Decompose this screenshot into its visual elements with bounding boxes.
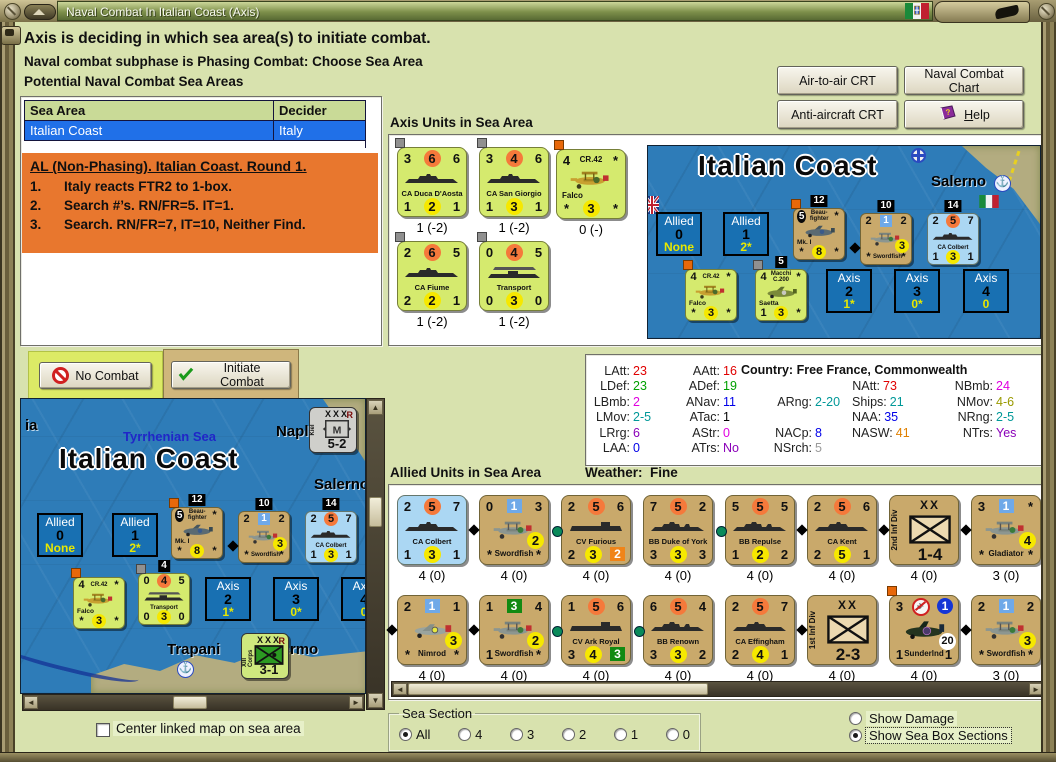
unit-stats-panel: LAtt:23AAtt:16LDef:23ADef:19NAtt:73NBmb:…	[585, 354, 1048, 466]
stat-value: 5	[815, 441, 852, 455]
counter-value: 2	[610, 547, 625, 561]
sea-area-map[interactable]: Italian Coast Salerno ⚓ Allied0None Alli…	[647, 145, 1041, 339]
counter-swordfish[interactable]: 2123*Swordfish*	[971, 595, 1041, 665]
counter-value: *	[562, 201, 571, 216]
column-decider[interactable]: Decider	[274, 101, 377, 121]
counter-value: 3	[506, 292, 523, 309]
counter-value: 2	[977, 599, 986, 614]
counter-bb-duke-of-york[interactable]: 752BB Duke of York333	[643, 495, 713, 565]
stat-nacp: NACp:8	[760, 426, 852, 440]
map-counter-xiii-corps[interactable]: XXXR3-1XIII Corps	[241, 633, 289, 679]
link-dot-icon	[552, 526, 563, 537]
counter-value: *	[77, 615, 86, 627]
counter-value: 7	[649, 499, 658, 514]
frame-right	[1041, 22, 1056, 752]
stat-lbmb: LBmb:2	[592, 395, 670, 409]
counter-value: 2	[567, 547, 576, 562]
counter-value: 1	[895, 647, 904, 662]
cell-sea-area[interactable]: Italian Coast	[25, 121, 274, 141]
stat-value: 2-5	[996, 410, 1033, 424]
log-number: 2.	[30, 196, 64, 215]
sea-box-number: 3	[292, 593, 300, 606]
counter-cv-furious[interactable]: 256CV Furious232	[561, 495, 631, 565]
svg-text:M: M	[333, 424, 342, 436]
radio-icon[interactable]	[399, 728, 412, 741]
map-vertical-scrollbar[interactable]: ▲ ▼	[366, 398, 385, 710]
link-diamond-icon	[796, 624, 807, 635]
counter-value: 2	[698, 647, 707, 662]
italy-flag-icon	[979, 195, 999, 208]
counter-value: 5	[780, 499, 789, 514]
air-to-air-crt-button[interactable]: Air-to-air CRT	[777, 66, 898, 95]
counter-value: 1	[966, 251, 975, 263]
counter-value: 2	[403, 599, 412, 614]
counter-sunderlnd[interactable]: 3✈1201Sunderlnd1	[889, 595, 959, 665]
counter-value: 5	[670, 598, 687, 615]
counter-value: 5	[834, 498, 851, 515]
cruiser-art-icon	[398, 514, 466, 538]
no-combat-button[interactable]: No Combat	[39, 362, 152, 389]
counter-value: *	[977, 547, 986, 562]
stat-value: 2	[633, 395, 670, 409]
counter-value: 6	[424, 244, 441, 261]
counter-caption: 3 (0)	[993, 568, 1020, 583]
units-horizontal-scrollbar[interactable]: ◄ ►	[391, 681, 1045, 697]
table-scroll-strip[interactable]	[365, 100, 379, 148]
sea-box-axis-3[interactable]: Axis30*	[273, 577, 319, 621]
sea-box-value: 0*	[290, 606, 301, 619]
counter-caption: 4 (0)	[829, 568, 856, 583]
counter-value: 2	[403, 245, 412, 260]
sea-box-allied-0[interactable]: Allied0None	[656, 212, 702, 256]
book-icon: ?	[938, 105, 958, 124]
biplane_tan-art-icon	[557, 168, 625, 192]
counter-unit[interactable]: XX2-31st Inf Div	[807, 595, 877, 665]
counter-value: 5	[175, 509, 184, 522]
counter-ca-colbert[interactable]: 14257CA Colbert131	[927, 213, 979, 265]
cruiser-art-icon	[928, 227, 978, 245]
sea-box-number: 0	[675, 228, 683, 241]
sea-box-allied-1[interactable]: Allied12*	[723, 212, 769, 256]
table-row[interactable]: Italian Coast Italy	[25, 121, 377, 141]
counter-value: 2	[567, 499, 576, 514]
stat-label: ATrs:	[670, 441, 720, 455]
roundel-icon	[911, 148, 926, 163]
counter-value: 1	[880, 215, 892, 227]
counter-ca-kent[interactable]: 256CA Kent251	[807, 495, 877, 565]
sea-box-allied-0[interactable]: Allied0None	[37, 513, 83, 557]
counter-value: CR.42	[580, 156, 603, 164]
counter-value: *	[1026, 499, 1035, 514]
counter-value: 2	[403, 499, 412, 514]
map-counter-kiel[interactable]: XXXRM5-2Kiel	[309, 407, 357, 453]
port-salerno-label: Salerno	[931, 173, 986, 190]
region-label: ia	[25, 417, 38, 434]
counter-unit[interactable]: XX1-42nd Inf Div	[889, 495, 959, 565]
counter-value: 5	[670, 498, 687, 515]
stat-label: ADef:	[670, 379, 720, 393]
counter-value: 1	[452, 293, 461, 308]
counter-value: 2	[731, 599, 740, 614]
counter-value: 3	[610, 647, 625, 661]
sea-box-axis-4[interactable]: Axis40	[341, 577, 366, 621]
counter-value: Swordfish	[495, 650, 534, 658]
sea-area-table: Sea Area Decider Italian Coast Italy	[24, 100, 377, 141]
biplane_gray-art-icon: 3	[239, 525, 289, 549]
log-title: AL (Non-Phasing). Italian Coast. Round 1…	[30, 158, 370, 174]
counter-value: 1	[999, 599, 1014, 613]
biplane_gray-art-icon: 4	[972, 514, 1040, 546]
counter-value: 2	[813, 499, 822, 514]
stat-latt: LAtt:23	[592, 364, 670, 378]
linked-map[interactable]: ia Tyrrhenian Sea Naples XXXRM5-2Kiel It…	[20, 398, 366, 694]
radio-option-2[interactable]: 2	[562, 726, 586, 744]
counter-value: 1	[485, 599, 494, 614]
counter-value: Macchi C.200	[768, 271, 794, 283]
stat-laa: LAA:0	[592, 441, 670, 455]
counter-value: 5	[752, 498, 769, 515]
counter-value: *	[864, 251, 873, 263]
counter-ca-fiume[interactable]: 265CA Fiume221	[397, 241, 467, 311]
counter-value: 3	[424, 546, 441, 563]
center-map-label: Center linked map on sea area	[113, 721, 304, 736]
counter-value: 7	[452, 499, 461, 514]
fighter_gray-art-icon	[794, 222, 844, 240]
no-combat-label: No Combat	[75, 369, 138, 383]
counter-ca-colbert[interactable]: 257CA Colbert131	[397, 495, 467, 565]
counter-name: CA Colbert	[398, 538, 466, 546]
link-diamond-icon	[960, 624, 971, 635]
counter-swordfish[interactable]: 102123*Swordfish*	[238, 511, 290, 563]
radio-icon[interactable]	[562, 728, 575, 741]
sea-box-value: 0	[983, 298, 990, 311]
counter-nimrod[interactable]: 2113*Nimrod*	[397, 595, 467, 665]
counter-bb-repulse[interactable]: 555BB Repulse122	[725, 495, 795, 565]
stat-value: 19	[723, 379, 760, 393]
allied-units-panel: 257CA Colbert1314 (0) 0132*Swordfish*4 (…	[388, 484, 1048, 700]
no-fly-marker: ✈	[912, 597, 930, 616]
stat-anav: ANav:11	[670, 395, 760, 409]
stat-ldef: LDef:23	[592, 379, 670, 393]
counter-value: 5	[797, 210, 806, 223]
log-number: 3.	[30, 215, 64, 234]
counter-value: *	[832, 246, 841, 258]
sea-box-allied-1[interactable]: Allied12*	[112, 513, 158, 557]
counter-value: 5	[588, 598, 605, 615]
counter-value: 1	[452, 547, 461, 562]
radio-icon[interactable]	[614, 728, 627, 741]
cruiser-art-icon	[306, 525, 356, 543]
stat-value: 73	[883, 379, 920, 393]
tyrrhenian-sea-label: Tyrrhenian Sea	[123, 429, 216, 444]
italy-flag-icon	[905, 3, 929, 19]
counter-value: 2	[780, 547, 789, 562]
no-fly-icon: ✈	[912, 598, 930, 616]
stat-value: No	[723, 441, 760, 455]
counter-transport[interactable]: 045Transport030	[479, 241, 549, 311]
counter-value: 3	[670, 646, 687, 663]
counter-value: *	[977, 647, 986, 662]
title-bar[interactable]: Naval Combat In Italian Coast (Axis)	[0, 0, 1056, 22]
link-diamond-icon	[849, 242, 860, 253]
counter-value: Swordfish	[251, 552, 277, 558]
counter-value: 1	[452, 599, 461, 614]
frame-knob	[1, 26, 21, 45]
stat-lrrg: LRrg:6	[592, 426, 670, 440]
show-damage-option[interactable]: Show Damage	[849, 710, 957, 728]
dark_plane-art-icon: 20	[890, 614, 958, 646]
cruiser-art-icon	[808, 514, 876, 538]
radio-option-3[interactable]: 3	[510, 726, 534, 744]
initiate-combat-button[interactable]: Initiate Combat	[171, 361, 291, 389]
counter-value: 1	[780, 647, 789, 662]
stat-arng: ARng:2-20	[760, 395, 852, 409]
counter-subname: Falco	[557, 192, 625, 200]
sea-box-axis-2[interactable]: Axis21*	[205, 577, 251, 621]
scroll-thumb[interactable]	[408, 683, 708, 695]
counter-caption: 1 (-2)	[416, 220, 447, 235]
counter-value: 2	[698, 499, 707, 514]
counter-value: 1	[485, 199, 494, 214]
collapse-button[interactable]	[24, 4, 56, 20]
map-title: Italian Coast	[59, 443, 238, 475]
counter-value: 5	[731, 499, 740, 514]
counter-value: 4	[77, 579, 86, 591]
stat-nasw: NASW:41	[852, 426, 920, 440]
sea-box-value: 2*	[740, 241, 751, 254]
counter-value: *	[112, 579, 121, 591]
counter-saetta[interactable]: 54Macchi C.200*Saetta13*	[755, 269, 807, 321]
stat-label: NAtt:	[852, 379, 880, 393]
scroll-thumb[interactable]	[369, 497, 382, 527]
battleship-art-icon	[726, 514, 794, 538]
counter-value: 3	[157, 610, 171, 624]
radio-option-1[interactable]: 1	[614, 726, 638, 744]
counter-value: 3	[485, 151, 494, 166]
city-trapani-label: Trapani	[167, 641, 220, 658]
stat-label: LAA:	[592, 441, 630, 455]
check-icon	[178, 367, 194, 384]
counter-value: 1	[258, 513, 270, 525]
stat-label: NASW:	[852, 426, 893, 440]
counter-falco[interactable]: 4CR.42*Falco*3*	[73, 577, 125, 629]
stat-ntrs: NTrs:Yes	[920, 426, 1033, 440]
biplane_gray-art-icon: 3	[861, 227, 911, 251]
corner-marker-orange	[887, 586, 897, 596]
link-diamond-icon	[227, 540, 238, 551]
counter-transport[interactable]: 4045Transport030	[138, 573, 190, 625]
counter-value: Gladiator	[988, 550, 1023, 558]
counter-value: *	[724, 307, 733, 319]
counter-value: 0	[485, 245, 494, 260]
counter-ca-duca-d-aosta[interactable]: 366CA Duca D'Aosta121	[397, 147, 467, 217]
triangle-icon	[33, 9, 45, 15]
counter-value: 5	[177, 575, 186, 587]
counter-name: CV Ark Royal	[562, 638, 630, 646]
division-rating: 1-4	[902, 547, 958, 562]
counter-cv-ark-royal[interactable]: 156CV Ark Royal343	[561, 595, 631, 665]
sea-box-axis-4[interactable]: Axis40	[963, 269, 1009, 313]
radio-icon[interactable]	[510, 728, 523, 741]
counter-value: 3	[895, 599, 904, 614]
counter-value: *	[797, 246, 806, 258]
stat-label: NBmb:	[920, 379, 993, 393]
counter-value: 7	[344, 513, 353, 525]
counter-swordfish[interactable]: 13421Swordfish*	[479, 595, 549, 665]
column-sea-area[interactable]: Sea Area	[25, 101, 274, 121]
log-line: 3.Search. RN/FR=7, IT=10, Neither Find.	[30, 215, 370, 234]
counter-value: 3	[698, 547, 707, 562]
axis-units-title: Axis Units in Sea Area	[390, 115, 533, 130]
center-map-checkbox[interactable]	[96, 723, 110, 737]
counter-falco[interactable]: 4CR.42*Falco*3*	[556, 149, 626, 219]
counter-mk-i[interactable]: 125Beau-fighter*Mk. I*8*	[793, 208, 845, 260]
counter-value: 8	[812, 245, 826, 259]
scroll-up-arrow[interactable]: ▲	[368, 400, 383, 415]
help-button[interactable]: ? Help	[904, 100, 1024, 129]
counter-value: 6	[862, 499, 871, 514]
counter-value: 3	[92, 614, 106, 628]
radio-option-4[interactable]: 4	[458, 726, 482, 744]
xgreen-icon	[254, 645, 284, 664]
counter-value: *	[485, 547, 494, 562]
counter-value: 1	[937, 598, 953, 614]
fighter_green-art-icon	[756, 283, 806, 301]
corner-marker-orange	[554, 140, 564, 150]
stat-label: LAtt:	[592, 364, 630, 378]
axis-units-panel: 366CA Duca D'Aosta1211 (-2) 346CA San Gi…	[388, 134, 1048, 346]
sea-area-panel: Sea Area Decider Italian Coast Italy AL …	[20, 96, 382, 346]
biplane_gray-art-icon: 2	[480, 614, 548, 646]
counter-caption: 0 (-)	[579, 222, 603, 237]
counter-mk-i[interactable]: 125Beau-fighter*Mk. I*8*	[171, 507, 223, 559]
counter-value: *	[242, 549, 251, 561]
stat-label: ARng:	[760, 395, 812, 409]
scroll-down-arrow[interactable]: ▼	[368, 693, 383, 708]
stat-label: LDef:	[592, 379, 630, 393]
counter-value: 6	[452, 151, 461, 166]
cruiser-art-icon	[726, 614, 794, 638]
counter-value: 3	[670, 546, 687, 563]
radio-icon[interactable]	[849, 729, 862, 742]
stack-count-badge: 12	[188, 494, 205, 506]
counter-swordfish[interactable]: 0132*Swordfish*	[479, 495, 549, 565]
radio-icon[interactable]	[666, 728, 679, 741]
log-text: Italy reacts FTR2 to 1-box.	[64, 177, 232, 196]
counter-value: 3	[774, 306, 788, 320]
counter-value: 3	[946, 250, 960, 264]
sea-box-value: 1*	[843, 298, 854, 311]
radio-option-all[interactable]: All	[399, 726, 430, 744]
no-symbol-icon	[52, 367, 69, 384]
transport-art-icon	[480, 260, 548, 284]
stack-count-badge: 12	[810, 195, 827, 207]
radio-icon[interactable]	[849, 712, 862, 725]
cell-decider[interactable]: Italy	[274, 121, 377, 141]
stat-value: 0	[723, 426, 760, 440]
naval-combat-chart-button[interactable]: Naval Combat Chart	[904, 66, 1024, 95]
scroll-left-arrow[interactable]: ◄	[393, 683, 407, 695]
counter-value: 4	[698, 599, 707, 614]
counter-value: 2	[309, 513, 318, 525]
counter-value: 1	[507, 499, 522, 513]
counter-ca-san-giorgio[interactable]: 346CA San Giorgio131	[479, 147, 549, 217]
frame-left	[0, 22, 15, 752]
counter-value: 2	[424, 292, 441, 309]
log-text: Search. RN/FR=7, IT=10, Neither Find.	[64, 215, 306, 234]
stat-atrs: ATrs:No	[670, 441, 760, 455]
radio-option-0[interactable]: 0	[666, 726, 690, 744]
city-salerno-label: Salerno	[314, 476, 366, 493]
link-dot-icon	[716, 526, 727, 537]
stat-naa: NAA:35	[852, 410, 920, 424]
counter-caption: 1 (-2)	[498, 314, 529, 329]
map-title: Italian Coast	[698, 150, 877, 182]
counter-value: 6	[649, 599, 658, 614]
counter-value: 3	[506, 198, 523, 215]
stat-natt: NAtt:73	[852, 379, 920, 393]
sea-box-number: 2	[845, 285, 853, 298]
potential-areas-line: Potential Naval Combat Sea Areas	[24, 74, 243, 89]
counter-gladiator[interactable]: 31*4*Gladiator*	[971, 495, 1041, 565]
stat-label: LMov:	[592, 410, 630, 424]
screw-icon	[1038, 3, 1055, 20]
counter-value: 1	[403, 547, 412, 562]
counter-value: *	[611, 153, 620, 168]
sea-box-value: 2*	[129, 542, 140, 555]
radio-icon[interactable]	[458, 728, 471, 741]
counter-value: 2	[899, 215, 908, 227]
sea-box-axis-2[interactable]: Axis21*	[826, 269, 872, 313]
scroll-right-arrow[interactable]: ►	[349, 696, 363, 709]
log-text: Search #’s. RN/FR=5. IT=1.	[64, 196, 234, 215]
counter-name: BB Duke of York	[644, 538, 712, 546]
capacity-number: 20	[939, 633, 956, 650]
counter-ca-colbert[interactable]: 14257CA Colbert131	[305, 511, 357, 563]
counter-value: 3	[507, 599, 522, 613]
counter-name: CA Fiume	[398, 284, 466, 292]
counter-swordfish[interactable]: 102123*Swordfish*	[860, 213, 912, 265]
counter-value: 1	[344, 549, 353, 561]
link-dot-icon	[552, 626, 563, 637]
map-horizontal-scrollbar[interactable]: ◄ ►	[22, 694, 365, 711]
anti-aircraft-crt-button[interactable]: Anti-aircraft CRT	[777, 100, 898, 129]
show-sea-box-sections-option[interactable]: Show Sea Box Sections	[849, 727, 1011, 745]
scroll-thumb[interactable]	[173, 696, 207, 709]
counter-ca-effingham[interactable]: 257CA Effingham241	[725, 595, 795, 665]
stat-label: AStr:	[670, 426, 720, 440]
menu-glyph-icon	[994, 5, 1020, 20]
counter-value: *	[403, 647, 412, 662]
sea-box-axis-3[interactable]: Axis30*	[894, 269, 940, 313]
stat-label: NMov:	[920, 395, 993, 409]
scroll-left-arrow[interactable]: ◄	[24, 696, 38, 709]
corner-marker-orange	[71, 568, 81, 578]
counter-falco[interactable]: 4CR.42*Falco*3*	[685, 269, 737, 321]
counter-value: 1	[759, 307, 768, 319]
link-diamond-icon	[386, 624, 397, 635]
window-menu-button[interactable]	[934, 1, 1030, 23]
stat-value: 4-6	[996, 395, 1033, 409]
counter-value: 3	[324, 548, 338, 562]
stat-label: NTrs:	[920, 426, 993, 440]
counter-name: CA Duca D'Aosta	[398, 190, 466, 198]
counter-bb-renown[interactable]: 654BB Renown332	[643, 595, 713, 665]
stack-count-badge: 14	[944, 200, 961, 212]
transport-art-icon	[139, 587, 189, 605]
air-rating: 3	[273, 537, 287, 551]
air-rating: 3	[1019, 632, 1036, 649]
